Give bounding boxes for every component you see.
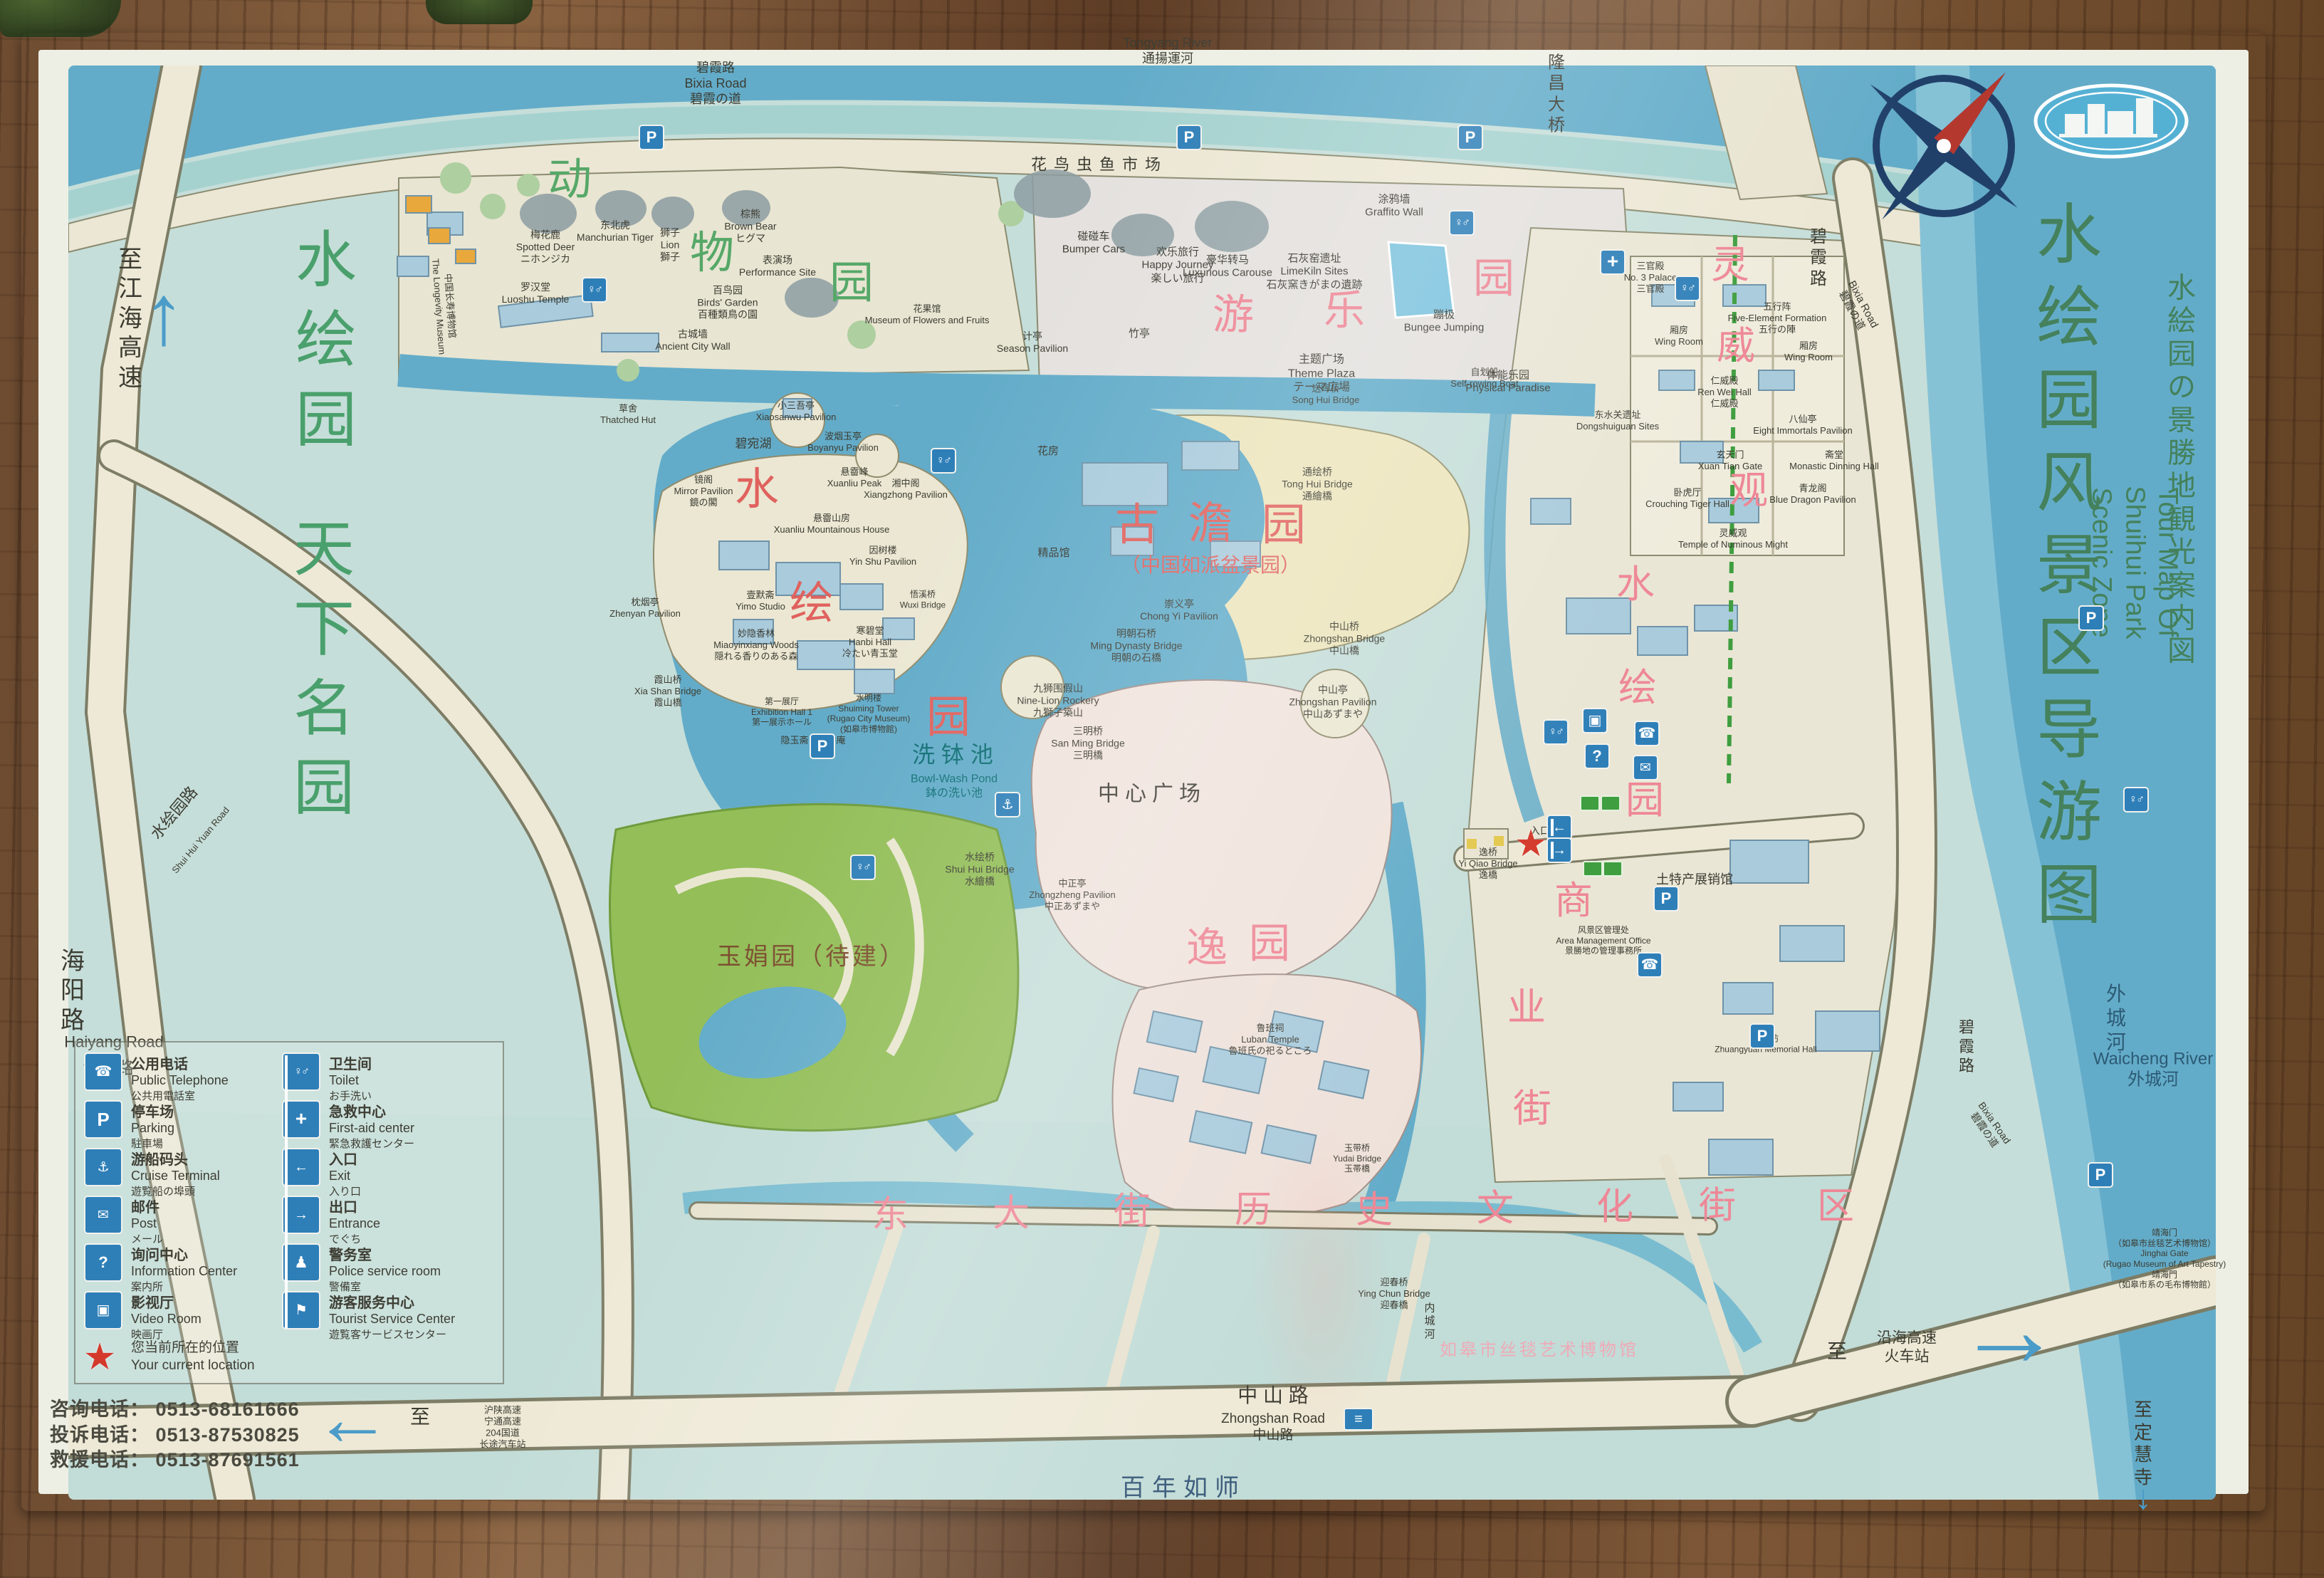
legend-label-en: Public Telephone — [131, 1073, 229, 1088]
info-icon — [1584, 743, 1610, 769]
legend-label-en: Police service room — [329, 1264, 441, 1279]
phone-line: 投诉电话： 0513-87530825 — [50, 1423, 300, 1448]
phone-icon — [1634, 721, 1660, 746]
legend-row: 出口 Entrance でぐち — [282, 1196, 496, 1235]
parking-icon — [1653, 886, 1679, 911]
firstaid-icon — [1600, 249, 1626, 275]
legend-row: 公用电话 Public Telephone 公共用電話室 — [84, 1052, 278, 1092]
toilet-icon — [1543, 719, 1569, 745]
legend-label-zh: 邮件 — [131, 1196, 163, 1216]
video-icon — [1582, 708, 1608, 733]
legend-row: 急救中心 First-aid center 緊急救護センター — [282, 1100, 496, 1140]
parking-icon — [2078, 605, 2104, 631]
current-location-star-icon — [80, 1337, 120, 1377]
legend-label-zh: 影视厅 — [131, 1291, 201, 1312]
parking-icon — [1176, 125, 1202, 150]
legend-label-en: Information Center — [131, 1264, 237, 1279]
legend-row: 游客服务中心 Tourist Service Center 遊覧客サービスセンタ… — [282, 1291, 496, 1331]
post-icon — [1633, 755, 1658, 780]
toilet-icon — [850, 855, 876, 880]
arrow-left-icon — [313, 1379, 392, 1458]
video-icon — [84, 1291, 122, 1329]
parking-icon — [2088, 1162, 2113, 1188]
legend-column-right: 卫生间 Toilet お手洗い 急救中心 First-aid center 緊急… — [282, 1052, 496, 1331]
legend-label-zh: 公用电话 — [131, 1052, 229, 1073]
boat-icon — [995, 792, 1020, 817]
legend-column-left: 公用电话 Public Telephone 公共用電話室 停车场 Parking… — [84, 1052, 278, 1331]
bungee-pool — [1388, 242, 1454, 318]
green-icon — [1603, 861, 1623, 877]
legend-label-en: Entrance — [329, 1216, 380, 1231]
yujuan-garden-green — [610, 804, 1018, 1130]
legend-label-zh: 停车场 — [131, 1100, 174, 1121]
exit-icon — [282, 1196, 320, 1234]
current-location-zh: 您当前所在的位置 — [131, 1339, 255, 1357]
exit-icon — [1546, 837, 1572, 863]
legend-row: 游船码头 Cruise Terminal 遊覧船の埠頭 — [84, 1148, 278, 1188]
legend-row: 停车场 Parking 駐車場 — [84, 1100, 278, 1140]
legend-label-en: Tourist Service Center — [329, 1312, 455, 1327]
current-location-legend: 您当前所在的位置 Your current location — [80, 1337, 255, 1377]
legend-label-zh: 出口 — [329, 1196, 380, 1216]
legend-row: 入口 Exit 入り口 — [282, 1148, 496, 1188]
parking-icon — [810, 733, 835, 759]
legend-label-en: Exit — [329, 1169, 361, 1183]
entrance-icon — [282, 1148, 320, 1186]
star-icon — [1511, 824, 1551, 864]
toilet-icon — [931, 448, 956, 474]
phone-line: 救援电话： 0513-87691561 — [50, 1448, 300, 1473]
legend-label-en: Post — [131, 1216, 163, 1231]
green-icon — [1583, 861, 1603, 877]
contact-phone-numbers: 咨询电话： 0513-68161666投诉电话： 0513-87530825救援… — [50, 1397, 300, 1473]
legend-label-zh: 急救中心 — [329, 1100, 414, 1121]
legend-label-zh: 卫生间 — [329, 1052, 372, 1073]
firstaid-icon — [282, 1100, 320, 1139]
phone-line: 咨询电话： 0513-68161666 — [50, 1397, 300, 1423]
phone-icon — [84, 1052, 122, 1091]
boat-icon — [84, 1148, 122, 1186]
green-icon — [1601, 795, 1621, 811]
info-icon — [84, 1243, 122, 1282]
phone-icon — [1637, 952, 1663, 978]
legend-row: 询问中心 Information Center 案内所 — [84, 1243, 278, 1283]
legend-label-zh: 游客服务中心 — [329, 1291, 455, 1312]
legend-row: 卫生间 Toilet お手洗い — [282, 1052, 496, 1092]
legend-label-zh: 询问中心 — [131, 1243, 237, 1264]
arrow-up-icon — [142, 272, 185, 357]
legend-label-jp: 遊覧客サービスセンター — [329, 1327, 455, 1342]
legend-row: 警务室 Police service room 警備室 — [282, 1243, 496, 1283]
parking-icon — [1749, 1023, 1775, 1049]
photo-of-park-map-sign: { "sign": { "board_type": "tour map sign… — [0, 0, 2324, 1578]
entrance-icon — [1546, 815, 1572, 840]
police-icon — [282, 1243, 320, 1282]
legend-label-en: Cruise Terminal — [131, 1169, 220, 1183]
legend-label-en: Toilet — [329, 1073, 372, 1088]
toilet-icon — [1449, 210, 1475, 236]
legend-row: 影视厅 Video Room 映画厅 — [84, 1291, 278, 1331]
current-location-en: Your current location — [131, 1357, 255, 1375]
parking-icon — [84, 1100, 122, 1139]
tourist-icon — [282, 1291, 320, 1329]
toilet-icon — [1675, 276, 1700, 301]
legend-row: 邮件 Post メール — [84, 1196, 278, 1235]
toilet-icon — [582, 277, 607, 303]
arrow-down-icon — [2135, 1481, 2152, 1515]
legend-label-en: Video Room — [131, 1312, 201, 1327]
parking-icon — [1457, 125, 1483, 150]
legend-label-en: First-aid center — [329, 1121, 414, 1136]
green-icon — [1580, 795, 1600, 811]
arrow-right-icon — [1956, 1275, 2063, 1382]
toilet-icon — [282, 1052, 320, 1091]
parking-icon — [639, 125, 664, 150]
legend-label-zh: 游船码头 — [131, 1148, 220, 1169]
park-logo-icon — [2036, 85, 2187, 157]
legend-label-en: Parking — [131, 1121, 174, 1136]
post-icon — [84, 1196, 122, 1234]
sign-icon — [1344, 1408, 1373, 1431]
legend-label-zh: 入口 — [329, 1148, 361, 1169]
legend-label-zh: 警务室 — [329, 1243, 441, 1264]
toilet-icon — [2123, 787, 2149, 812]
